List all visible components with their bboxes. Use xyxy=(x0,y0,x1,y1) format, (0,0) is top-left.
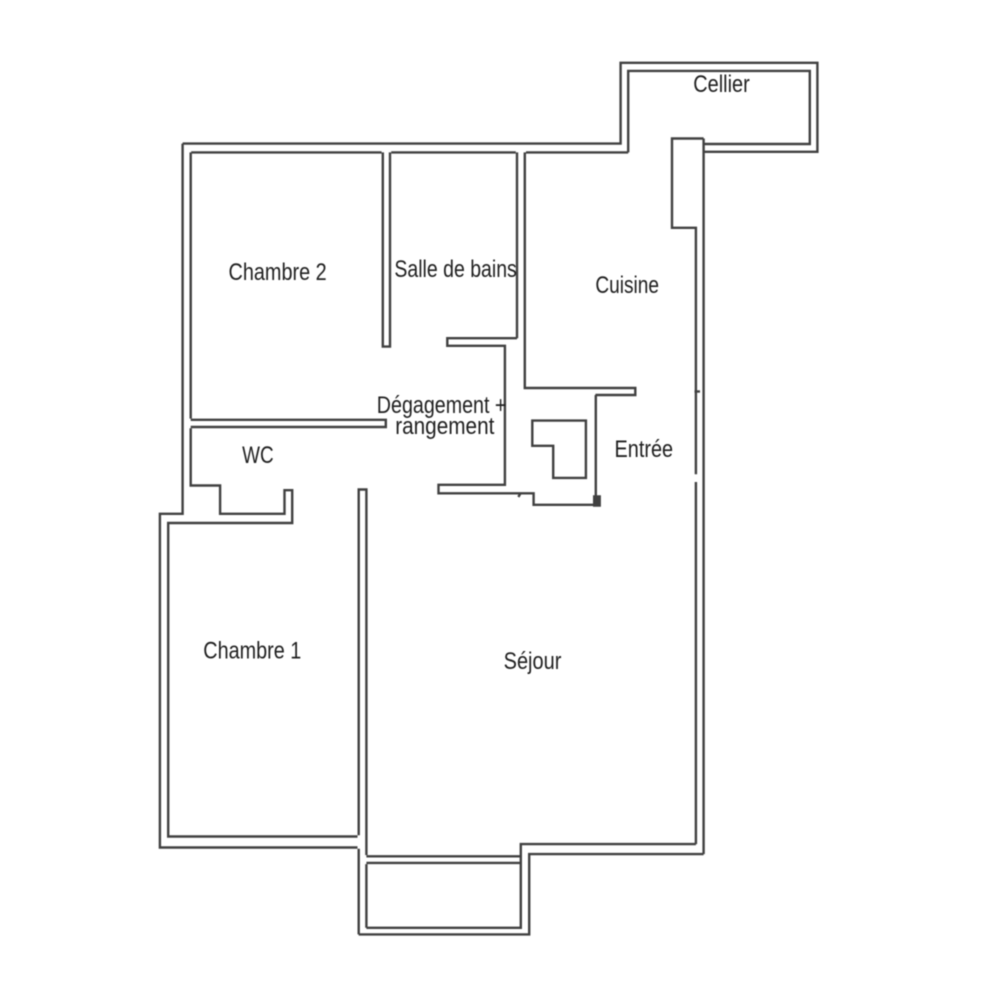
svg-text:Entrée: Entrée xyxy=(615,436,674,463)
svg-text:Cellier: Cellier xyxy=(693,71,750,98)
svg-text:Cuisine: Cuisine xyxy=(595,272,659,299)
svg-text:Séjour: Séjour xyxy=(504,648,562,675)
svg-text:Chambre 1: Chambre 1 xyxy=(203,638,301,665)
svg-text:Salle de bains: Salle de bains xyxy=(394,256,516,283)
svg-text:WC: WC xyxy=(242,442,274,469)
svg-text:rangement: rangement xyxy=(395,413,494,440)
svg-text:Chambre 2: Chambre 2 xyxy=(229,259,327,286)
